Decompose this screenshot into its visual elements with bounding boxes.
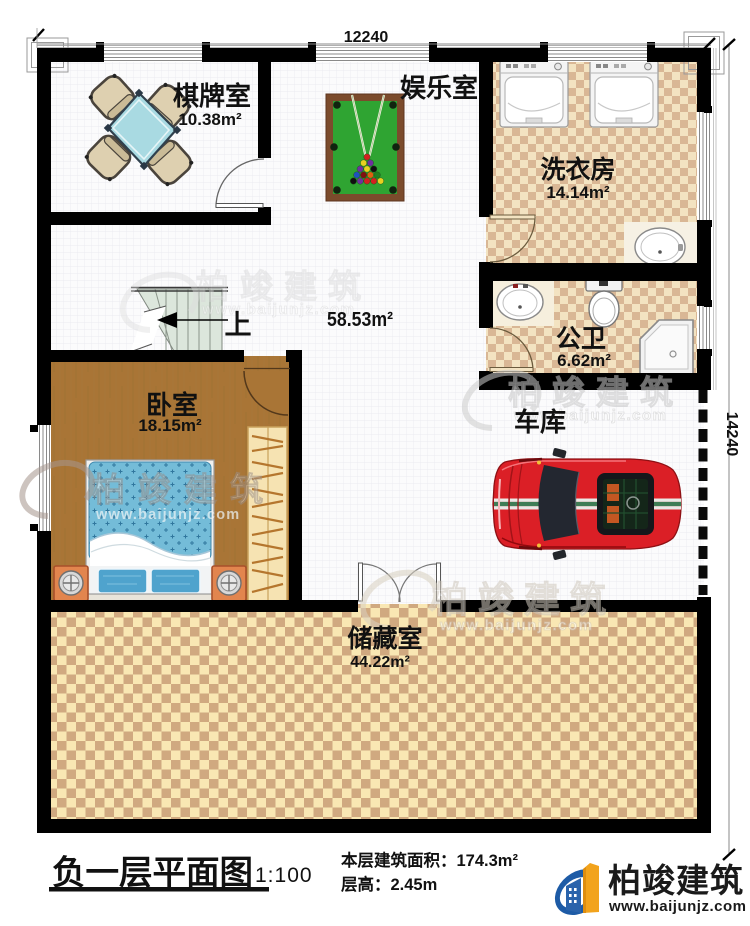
svg-text:www.baijunjz.com: www.baijunjz.com <box>608 898 746 915</box>
svg-text:棋牌室: 棋牌室 <box>173 81 251 111</box>
svg-text:储藏室: 储藏室 <box>347 624 422 653</box>
svg-text:柏竣建筑: 柏竣建筑 <box>608 862 744 899</box>
svg-text:18.15m²: 18.15m² <box>138 416 202 435</box>
svg-text:10.38m²: 10.38m² <box>178 110 242 129</box>
svg-text:6.62m²: 6.62m² <box>557 351 611 370</box>
svg-text:上: 上 <box>225 310 252 340</box>
svg-text:14.14m²: 14.14m² <box>546 183 610 202</box>
svg-text:www.baijunjz.com: www.baijunjz.com <box>439 617 593 634</box>
svg-text:柏竣建筑: 柏竣建筑 <box>196 268 372 305</box>
svg-text:14240: 14240 <box>723 412 740 457</box>
svg-text:负一层平面图: 负一层平面图 <box>52 855 253 892</box>
svg-text:www.baijunjz.com: www.baijunjz.com <box>95 507 240 523</box>
svg-text:44.22m²: 44.22m² <box>350 654 410 671</box>
svg-text:层高：2.45m: 层高：2.45m <box>341 874 437 894</box>
svg-text:12240: 12240 <box>344 29 389 46</box>
svg-text:1:100: 1:100 <box>255 864 313 887</box>
svg-text:柏竣建筑: 柏竣建筑 <box>508 374 684 411</box>
svg-text:柏竣建筑: 柏竣建筑 <box>432 579 616 620</box>
svg-text:娱乐室: 娱乐室 <box>400 73 478 103</box>
svg-text:洗衣房: 洗衣房 <box>540 155 615 184</box>
svg-text:车库: 车库 <box>514 407 566 437</box>
svg-text:58.53m²: 58.53m² <box>327 309 393 331</box>
svg-text:公卫: 公卫 <box>556 325 606 353</box>
svg-text:柏竣建筑: 柏竣建筑 <box>92 471 276 508</box>
svg-text:本层建筑面积：174.3m²: 本层建筑面积：174.3m² <box>341 850 518 870</box>
